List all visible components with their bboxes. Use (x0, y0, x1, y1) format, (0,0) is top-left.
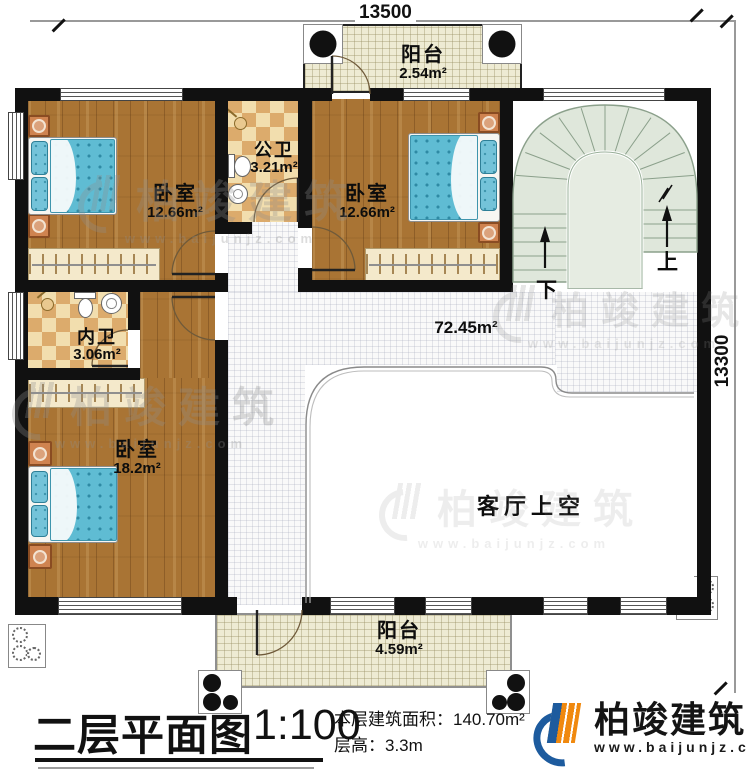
wall (215, 340, 228, 597)
company-name: 柏竣建筑 (594, 701, 750, 739)
hall-area-label: 72.45m² (434, 318, 497, 338)
hall-floor (555, 292, 697, 392)
wall (182, 597, 237, 615)
pillow (480, 140, 497, 174)
pillow (31, 141, 48, 175)
room-label-bedroom3: 卧室 18.2m² (113, 439, 161, 478)
window (543, 597, 588, 615)
wall (302, 597, 330, 615)
wall (15, 280, 222, 292)
wall (697, 88, 711, 615)
window (330, 597, 395, 615)
wall (298, 93, 312, 228)
sink (101, 293, 122, 314)
dimension-line-right (734, 20, 736, 693)
balcony-column (482, 24, 522, 64)
bed-mattress (50, 468, 117, 541)
title-underline-thin (38, 767, 314, 769)
company-logo: 柏竣建筑 www.baijunjz.com (538, 700, 750, 756)
pillow (31, 471, 48, 503)
company-logo-icon (538, 700, 586, 756)
corner-column-cluster (8, 624, 46, 668)
room-label-bedroom1: 卧室 12.66m² (147, 183, 203, 222)
vestibule-floor (140, 292, 215, 382)
stair-down-label: 下 (536, 274, 557, 304)
wall (183, 88, 303, 101)
dimension-height: 13300 (712, 330, 734, 392)
wall (500, 93, 513, 292)
sink (228, 184, 248, 204)
pillow (31, 177, 48, 211)
window (425, 597, 472, 615)
bed-mattress (50, 139, 115, 213)
nightstand (478, 112, 500, 133)
wall (472, 597, 543, 615)
room-label-bedroom2: 卧室 12.66m² (339, 183, 395, 222)
wardrobe (28, 378, 145, 408)
drawing-title: 二层平面图1:100 (33, 701, 361, 763)
bed-mattress (410, 135, 478, 220)
pillow (31, 505, 48, 537)
stair-up-label: 上 (657, 246, 678, 276)
wall (588, 597, 620, 615)
dimension-width: 13500 (355, 2, 416, 24)
window (403, 88, 470, 101)
wall (370, 88, 403, 101)
nightstand (28, 214, 50, 238)
nightstand (28, 115, 50, 137)
toilet-bowl (78, 298, 93, 318)
shower-head (234, 117, 247, 130)
wall (667, 597, 711, 615)
floor-height-line: 层高：3.3m (334, 733, 525, 759)
living-void-area (305, 365, 557, 605)
balcony-column (303, 24, 343, 64)
nightstand (28, 544, 52, 569)
title-text: 二层平面图 (33, 701, 253, 763)
window (620, 597, 667, 615)
nightstand (478, 222, 500, 243)
dimension-tick (714, 681, 728, 695)
wall (128, 292, 140, 330)
room-label-balcony-top: 阳台 2.54m² (399, 44, 447, 83)
room-label-public-bath: 公卫 3.21m² (250, 140, 298, 177)
pillow (480, 177, 497, 211)
wall (15, 368, 140, 380)
wall (298, 280, 513, 292)
title-underline (35, 758, 323, 762)
floor-area-line: 本层建筑面积：140.70m² (334, 707, 525, 733)
window (543, 88, 665, 101)
living-void-label: 客厅上空 (477, 489, 585, 521)
window (60, 88, 183, 101)
window (58, 597, 182, 615)
room-label-inner-bath: 内卫 3.06m² (73, 327, 121, 364)
wardrobe (28, 248, 160, 281)
wall (215, 222, 252, 234)
wall (395, 597, 425, 615)
nightstand (28, 441, 52, 466)
shower-head (41, 298, 54, 311)
company-website: www.baijunjz.com (594, 739, 750, 755)
wardrobe (365, 248, 500, 281)
corridor-floor (228, 365, 305, 605)
room-label-balcony-bottom: 阳台 4.59m² (375, 620, 423, 659)
wall (215, 101, 228, 227)
wall (15, 597, 58, 615)
floor-plan-page: 13500 13300 (0, 0, 750, 780)
window (8, 292, 24, 360)
floor-info: 本层建筑面积：140.70m² 层高：3.3m (334, 707, 525, 758)
balcony-bottom-floor (215, 613, 512, 688)
toilet-bowl (234, 156, 251, 177)
window (8, 112, 24, 180)
